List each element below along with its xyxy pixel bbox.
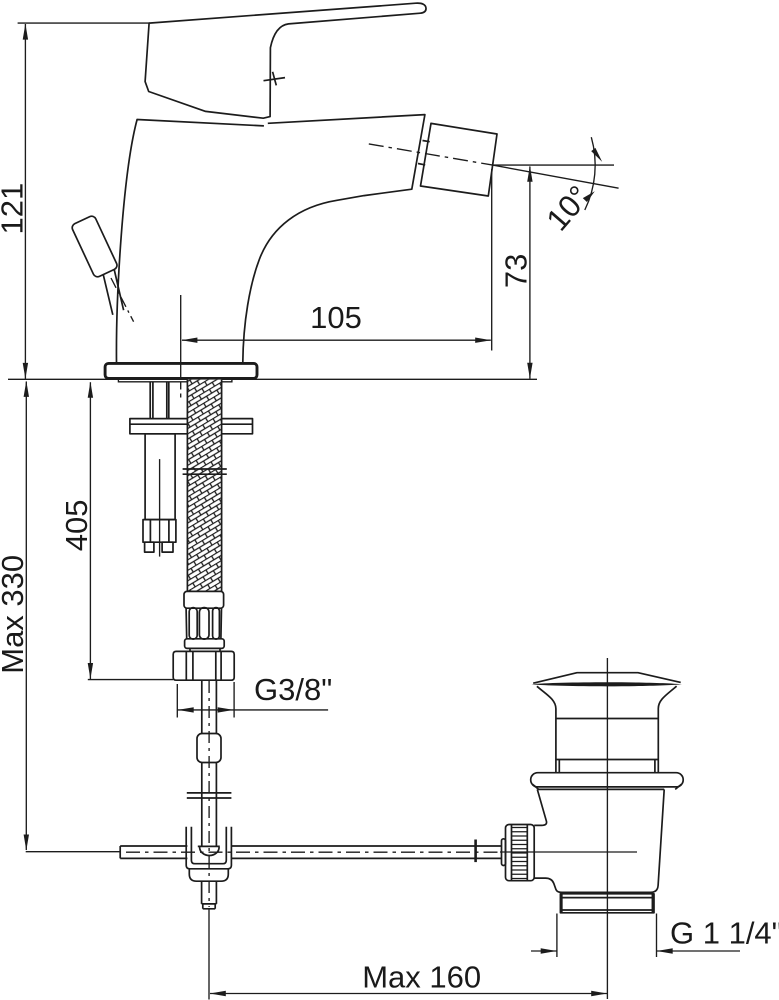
svg-text:121: 121 — [0, 183, 30, 235]
svg-text:105: 105 — [310, 300, 362, 335]
svg-text:73: 73 — [499, 254, 534, 288]
svg-text:G 1 1/4": G 1 1/4" — [670, 916, 779, 951]
svg-text:G3/8": G3/8" — [254, 672, 332, 707]
svg-text:Max 160: Max 160 — [362, 960, 481, 995]
svg-text:Max 330: Max 330 — [0, 555, 30, 674]
svg-text:405: 405 — [59, 500, 94, 552]
